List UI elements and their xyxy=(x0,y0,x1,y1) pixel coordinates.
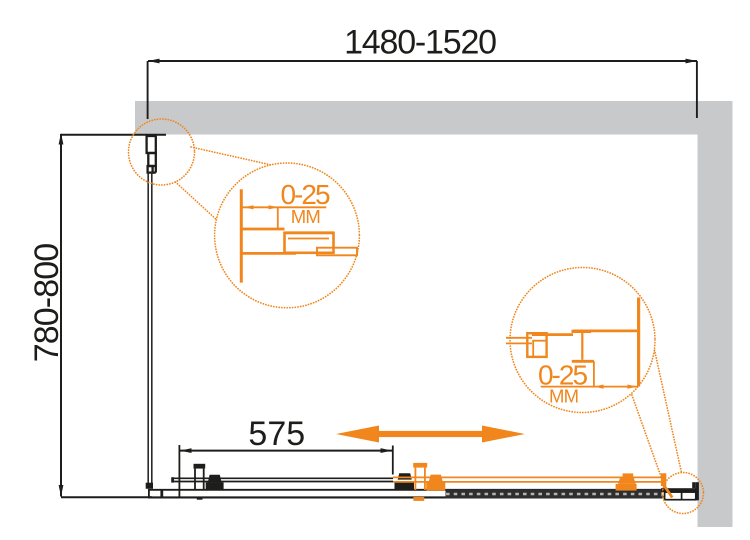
svg-text:575: 575 xyxy=(248,415,305,453)
svg-text:1480-1520: 1480-1520 xyxy=(344,24,496,62)
svg-text:MM: MM xyxy=(549,386,578,407)
svg-text:780-800: 780-800 xyxy=(28,244,66,362)
svg-text:MM: MM xyxy=(291,206,320,227)
